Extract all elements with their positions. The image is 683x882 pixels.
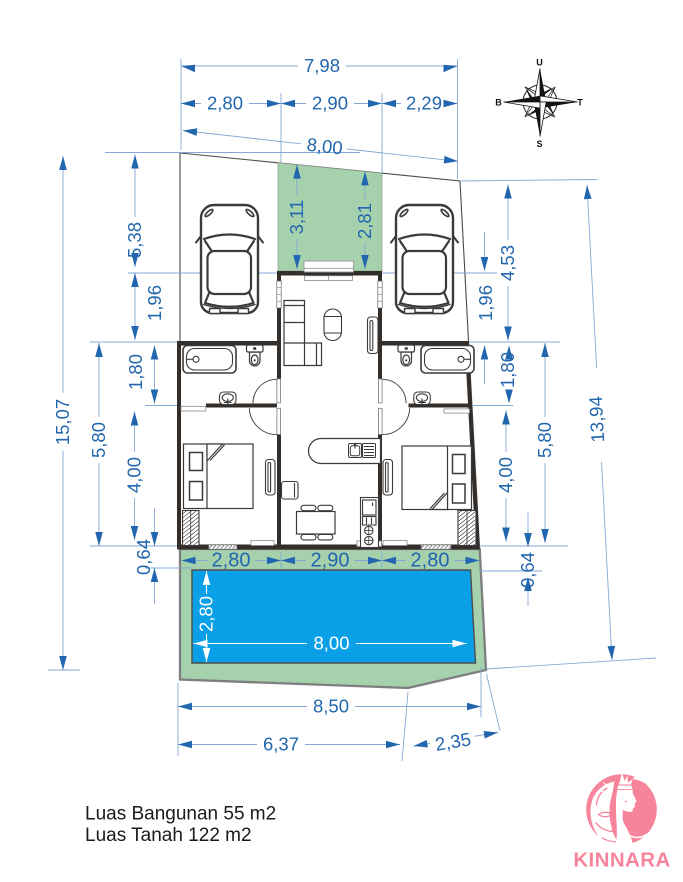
svg-text:KINNARA: KINNARA	[573, 849, 670, 872]
svg-text:1,96: 1,96	[144, 285, 165, 321]
svg-text:B: B	[495, 98, 502, 108]
svg-text:8,00: 8,00	[306, 134, 344, 159]
svg-text:2,81: 2,81	[354, 203, 375, 239]
svg-text:2,80: 2,80	[411, 550, 450, 572]
svg-text:2,90: 2,90	[312, 93, 348, 114]
svg-text:S: S	[536, 139, 542, 149]
svg-text:2,80: 2,80	[212, 550, 251, 572]
svg-text:13,94: 13,94	[585, 396, 608, 443]
svg-text:6,37: 6,37	[263, 734, 299, 755]
svg-text:8,50: 8,50	[313, 696, 349, 717]
svg-text:5,80: 5,80	[534, 422, 555, 458]
svg-text:2,90: 2,90	[311, 550, 350, 572]
svg-text:4,53: 4,53	[497, 245, 518, 281]
svg-text:5,38: 5,38	[124, 222, 145, 258]
svg-text:Luas Tanah 122 m2: Luas Tanah 122 m2	[85, 825, 252, 846]
svg-text:0,64: 0,64	[133, 539, 154, 575]
svg-text:3,11: 3,11	[286, 200, 307, 235]
svg-text:1,80: 1,80	[125, 354, 146, 390]
svg-text:2,80: 2,80	[207, 93, 243, 114]
svg-text:7,98: 7,98	[304, 55, 340, 76]
svg-text:Luas Bangunan 55 m2: Luas Bangunan 55 m2	[85, 804, 276, 825]
svg-text:5,80: 5,80	[88, 422, 109, 458]
svg-text:0,64: 0,64	[517, 552, 538, 588]
svg-text:1,80: 1,80	[497, 352, 518, 388]
svg-text:4,00: 4,00	[124, 457, 145, 493]
svg-text:8,00: 8,00	[313, 633, 349, 654]
svg-text:U: U	[536, 58, 543, 68]
svg-text:1,96: 1,96	[475, 285, 496, 321]
svg-text:2,80: 2,80	[196, 596, 217, 632]
svg-text:15,07: 15,07	[52, 399, 73, 445]
svg-text:2,29: 2,29	[406, 93, 442, 114]
svg-text:4,00: 4,00	[495, 457, 516, 493]
svg-text:T: T	[577, 98, 583, 108]
